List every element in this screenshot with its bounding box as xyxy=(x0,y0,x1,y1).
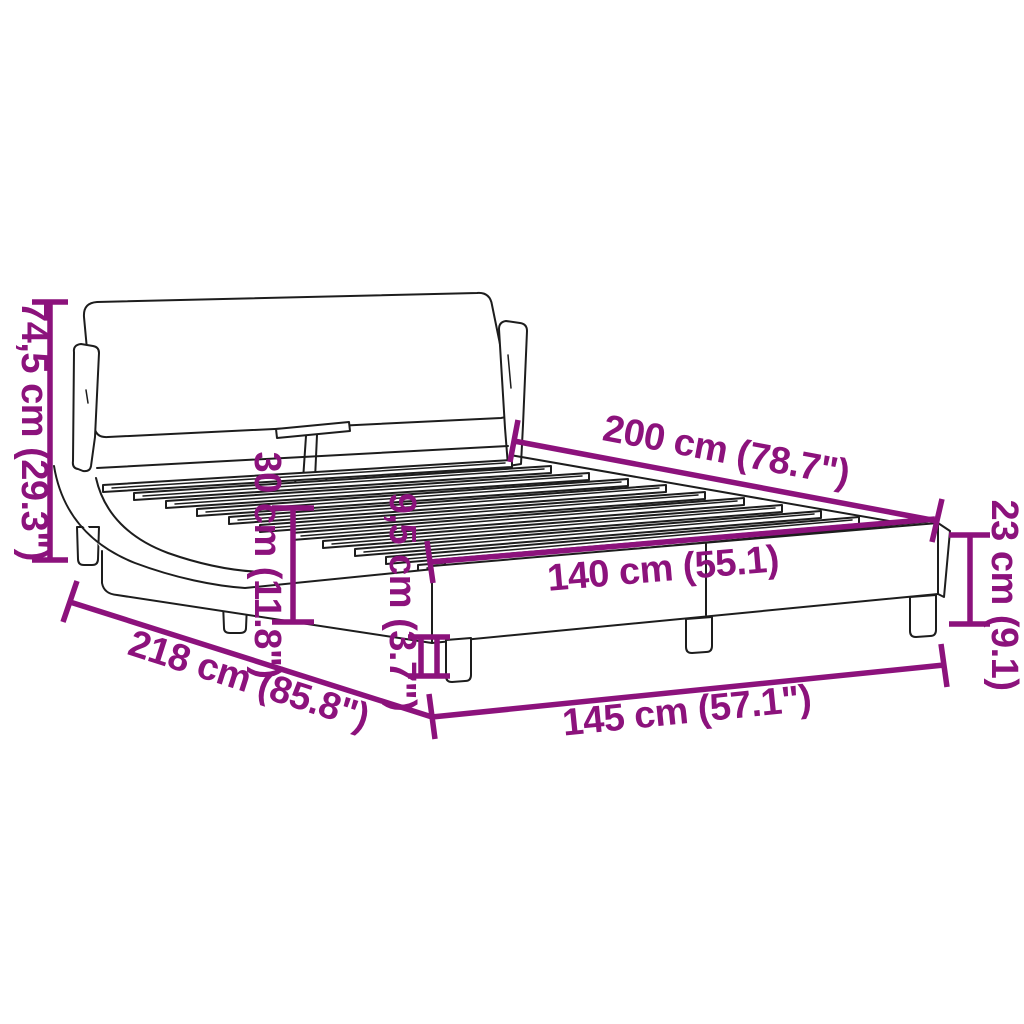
dim-overall-height-label: 74,5 cm (29.3") xyxy=(13,301,55,561)
dim-frame-height: 23 cm (9.1) xyxy=(949,500,1024,691)
diagram-svg: 74,5 cm (29.3") 200 cm (78.7") 30 cm (11… xyxy=(0,0,1024,1024)
dim-frame-height-label: 23 cm (9.1) xyxy=(983,500,1024,691)
leg-foot-right xyxy=(910,595,936,637)
leg-center-right xyxy=(686,617,712,653)
dim-overall-width-label: 145 cm (57.1") xyxy=(560,678,813,745)
bed-dimension-diagram: 74,5 cm (29.3") 200 cm (78.7") 30 cm (11… xyxy=(0,0,1024,1024)
foot-frame-side xyxy=(938,523,950,597)
dim-overall-width: 145 cm (57.1") xyxy=(429,644,947,745)
headboard-post-left xyxy=(73,344,99,471)
dim-leg-height-label: 9,5 cm (3.7") xyxy=(381,493,423,712)
dim-overall-height: 74,5 cm (29.3") xyxy=(13,301,68,561)
headboard-cushion xyxy=(84,293,512,437)
dim-rail-height-label: 30 cm (11.8") xyxy=(246,452,288,679)
